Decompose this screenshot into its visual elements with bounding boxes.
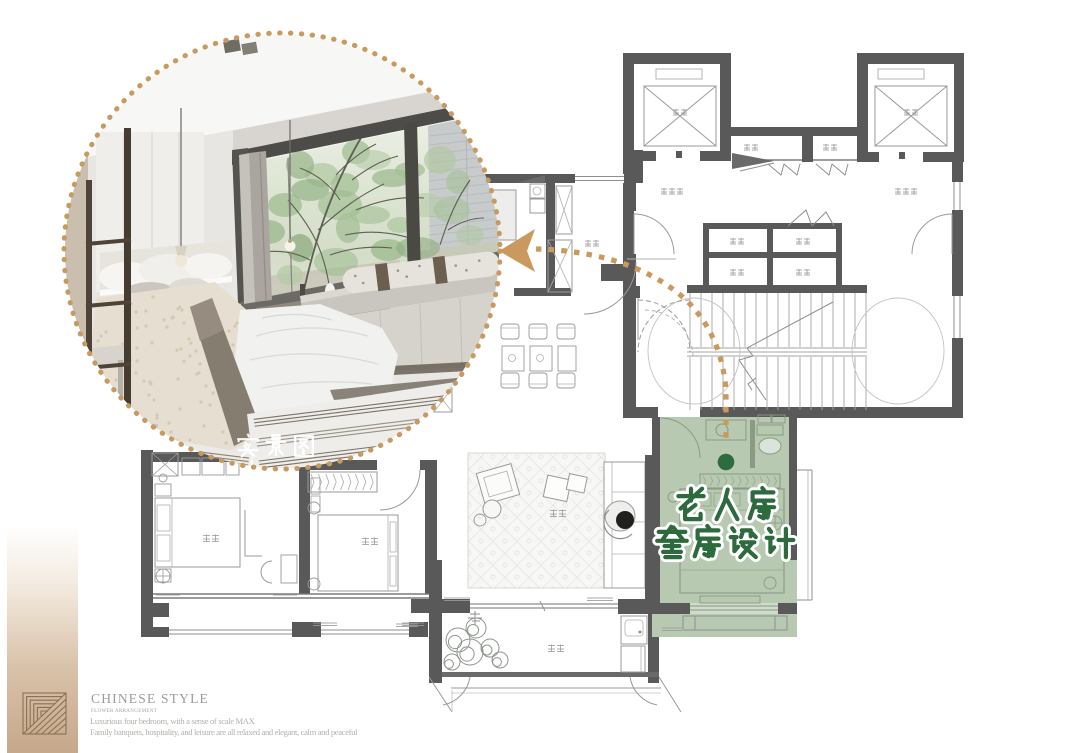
- svg-text:Luxurious four bedroom, with a: Luxurious four bedroom, with a sense of …: [90, 716, 256, 726]
- svg-text:Family banquets, hospitality,: Family banquets, hospitality, and leisur…: [90, 727, 358, 737]
- svg-text:FLOWER ARRANGEMENT: FLOWER ARRANGEMENT: [91, 709, 157, 714]
- svg-text:CHINESE STYLE: CHINESE STYLE: [91, 691, 209, 706]
